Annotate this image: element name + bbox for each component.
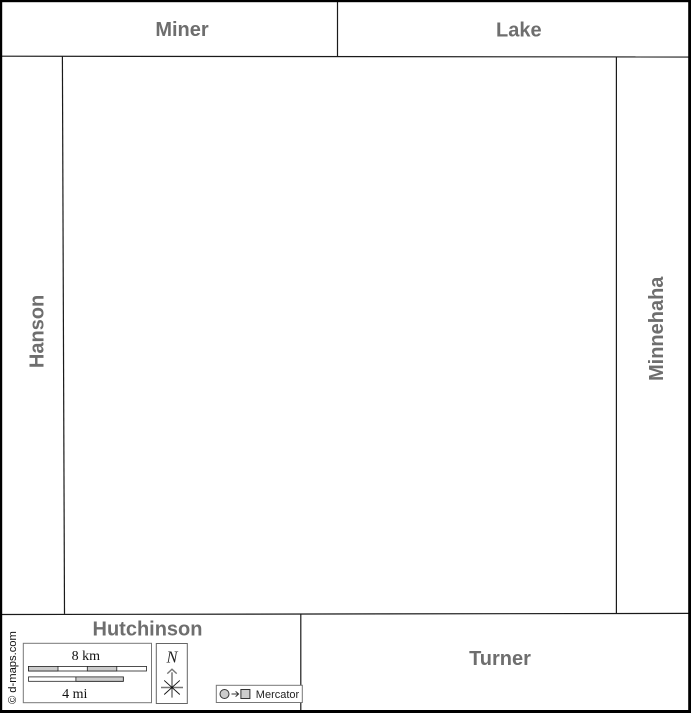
svg-text:Lake: Lake: [496, 19, 542, 41]
svg-text:4 mi: 4 mi: [62, 687, 87, 702]
svg-text:N: N: [165, 648, 178, 667]
svg-text:8 km: 8 km: [72, 649, 101, 664]
svg-text:Hutchinson: Hutchinson: [93, 619, 203, 641]
svg-text:Mercator: Mercator: [256, 689, 300, 701]
svg-text:Miner: Miner: [155, 19, 209, 41]
svg-text:Turner: Turner: [469, 648, 531, 670]
svg-text:Hanson: Hanson: [26, 295, 48, 368]
svg-text:Minnehaha: Minnehaha: [646, 276, 668, 381]
svg-text:© d-maps.com: © d-maps.com: [7, 631, 19, 704]
